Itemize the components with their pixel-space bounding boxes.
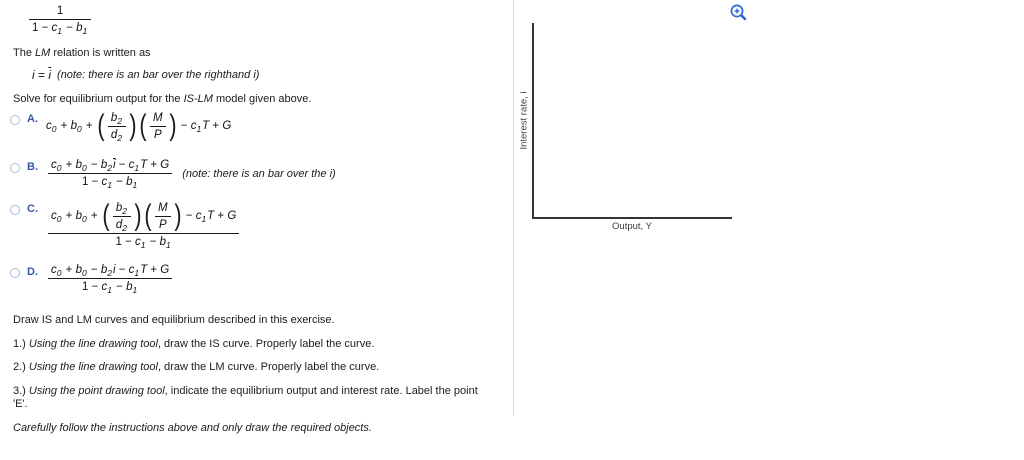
- instruction-step-2: 2.) Using the line drawing tool, draw th…: [13, 361, 493, 374]
- answer-option-b[interactable]: B. c0 + b0 − b2i − c1T + G1 − c1 − b1 (n…: [10, 159, 336, 188]
- option-b-note: (note: there is an bar over the i): [182, 168, 335, 180]
- option-c-formula: c0 + b0 + (b2d2)(MP) − c1T + G1 − c1 − b…: [46, 201, 241, 248]
- instruction-step-1: 1.) Using the line drawing tool, draw th…: [13, 338, 493, 351]
- zoom-in-icon[interactable]: [729, 3, 748, 22]
- instruction-step-3: 3.) Using the point drawing tool, indica…: [13, 385, 493, 411]
- answer-option-c[interactable]: C. c0 + b0 + (b2d2)(MP) − c1T + G1 − c1 …: [10, 201, 241, 248]
- i-equation-note: (note: there is an bar over the righthan…: [57, 69, 259, 81]
- option-d-radio[interactable]: [10, 268, 20, 278]
- option-c-radio[interactable]: [10, 205, 20, 215]
- multiplier-fraction: 11 − c1 − b1: [27, 5, 93, 34]
- option-c-letter[interactable]: C.: [27, 203, 42, 215]
- y-axis-label: Interest rate, i: [519, 81, 530, 161]
- option-b-letter[interactable]: B.: [27, 161, 42, 173]
- graph-x-axis: [532, 217, 732, 219]
- option-d-letter[interactable]: D.: [27, 266, 42, 278]
- x-axis-label: Output, Y: [582, 221, 682, 232]
- lm-relation-text: The LM relation is written as: [13, 47, 151, 60]
- graph-plot-area[interactable]: [533, 23, 731, 217]
- i-equation: i = i: [32, 68, 51, 82]
- option-a-letter[interactable]: A.: [27, 113, 42, 125]
- graph-y-axis: [532, 23, 534, 219]
- panel-divider: [513, 0, 514, 416]
- option-b-formula: c0 + b0 − b2i − c1T + G1 − c1 − b1: [46, 159, 174, 188]
- instructions-footer: Carefully follow the instructions above …: [13, 422, 493, 435]
- draw-instructions-heading: Draw IS and LM curves and equilibrium de…: [13, 314, 493, 327]
- option-a-radio[interactable]: [10, 115, 20, 125]
- option-b-radio[interactable]: [10, 163, 20, 173]
- answer-option-a[interactable]: A. c0 + b0 + (b2d2)(MP) − c1T + G: [10, 111, 231, 141]
- option-d-formula: c0 + b0 − b2i − c1T + G1 − c1 − b1: [46, 264, 174, 293]
- solve-prompt: Solve for equilibrium output for the IS-…: [13, 93, 311, 106]
- option-a-formula: c0 + b0 + (b2d2)(MP) − c1T + G: [46, 111, 231, 141]
- exercise-page: 11 − c1 − b1 The LM relation is written …: [0, 0, 1024, 460]
- answer-option-d[interactable]: D. c0 + b0 − b2i − c1T + G1 − c1 − b1: [10, 264, 174, 293]
